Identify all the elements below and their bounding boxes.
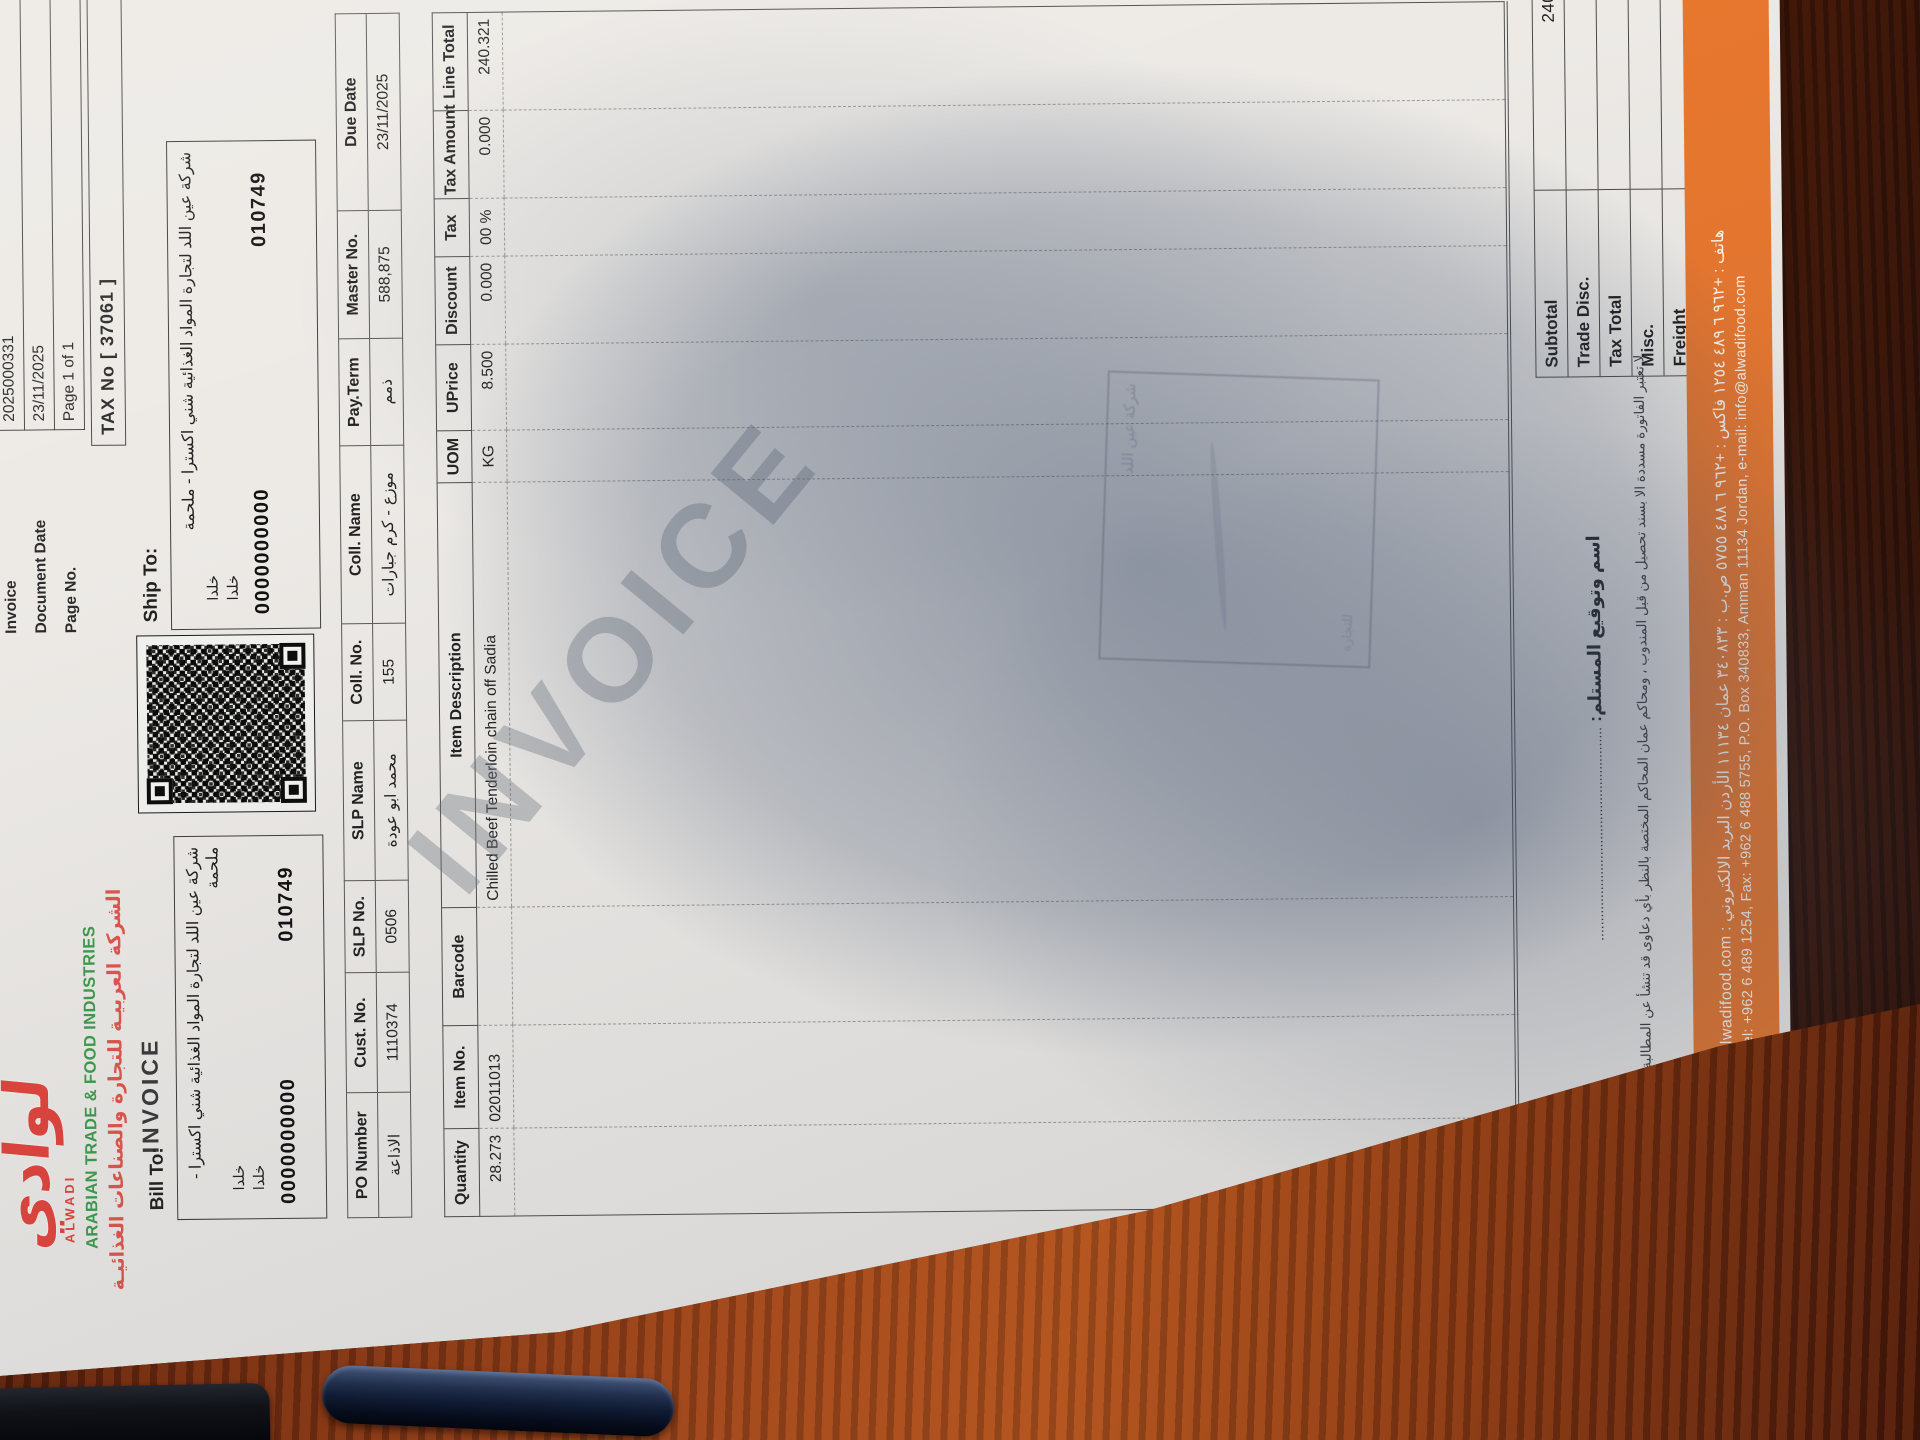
misc-value <box>1628 0 1663 190</box>
stamp-text: شركة عين اللد <box>1118 383 1139 474</box>
subtotal-label: Subtotal <box>1534 190 1568 377</box>
tax-total-label: Tax Total <box>1598 190 1632 377</box>
misc-label: Misc. <box>1630 189 1664 376</box>
company-name-english: ARABIAN TRADE & FOOD INDUSTRIES <box>80 889 103 1249</box>
uprice-header: UPrice <box>436 344 472 430</box>
item-quantity: 28.273 <box>479 1128 515 1216</box>
qr-code <box>136 634 316 814</box>
pay-term-value: ذمم <box>370 338 404 445</box>
tax-header: Tax <box>434 198 470 256</box>
item-tax: 00 % <box>469 198 505 256</box>
po-number-value: الاذاعة <box>377 1092 411 1217</box>
pay-term-header: Pay.Term <box>339 339 371 446</box>
brand-block: لوادي ALWADI ARABIAN TRADE & FOOD INDUST… <box>0 888 166 1250</box>
stamp-mark <box>1208 441 1230 631</box>
dark-object <box>0 1383 271 1440</box>
coll-name-value: موزع - كرم جبارات <box>371 445 406 623</box>
tax-amount-header: Tax Amount <box>433 110 469 198</box>
invoice-title: INVOICE <box>135 888 165 1153</box>
ship-to-customer-number: 010749 <box>247 171 271 247</box>
qr-finder-icon <box>281 777 307 803</box>
bill-to-name: شركة عين اللد لتجارة المواد الغذائية شني… <box>174 837 228 1220</box>
company-stamp: شركة عين اللد للتجارة <box>1098 370 1379 668</box>
coll-no-value: 155 <box>373 623 407 720</box>
bill-to-box: شركة عين اللد لتجارة المواد الغذائية شني… <box>173 835 327 1221</box>
quantity-header: Quantity <box>444 1128 480 1216</box>
tax-total-value <box>1596 0 1631 190</box>
legal-disclaimer: لا تعتبر الفاتورة مسددة الا بسند تحصيل م… <box>1631 355 1656 1175</box>
discount-header: Discount <box>435 256 471 344</box>
invoice-info-block: Invoice 2025000331 Document Date 23/11/2… <box>0 0 128 642</box>
item-barcode <box>477 907 513 1025</box>
receiver-signature-label: اسم وتوقيع المستلم: <box>1583 535 1605 722</box>
signature-dotted-line: ........................................… <box>1588 727 1606 941</box>
qr-finder-icon <box>147 778 173 804</box>
item-number: 02011013 <box>478 1025 514 1128</box>
bill-to-label: Bill To: <box>147 1147 170 1210</box>
master-no-value: 588,875 <box>368 210 402 338</box>
qr-finder-icon <box>279 643 305 669</box>
ship-to-account-number: 0000000000 <box>251 488 275 614</box>
alwadi-logo-arabic: لوادي <box>0 887 61 1253</box>
po-number-header: PO Number <box>346 1092 378 1217</box>
document-date-label: Document Date <box>25 430 57 642</box>
master-no-header: Master No. <box>337 211 369 339</box>
item-tax-amount: 0.000 <box>468 110 504 198</box>
trade-disc-row: Trade Disc. <box>1564 0 1600 377</box>
company-name-arabic: الشركة العربيـة للتجارة والصناعات الغذائ… <box>103 889 129 1249</box>
subtotal-row: Subtotal 240.321 <box>1532 0 1568 377</box>
info-row-page: Page No. Page 1 of 1 <box>50 0 87 641</box>
trade-disc-label: Trade Disc. <box>1566 190 1600 377</box>
invoice-number-label: Invoice <box>0 430 27 642</box>
bill-to-account-number: 0000000000 <box>277 1078 301 1204</box>
page-no-label: Page No. <box>55 429 87 641</box>
item-line-total: 240.321 <box>467 12 503 110</box>
tax-total-row: Tax Total <box>1596 0 1632 377</box>
coll-no-header: Coll. No. <box>342 623 374 720</box>
qr-pattern <box>146 644 306 804</box>
photo-scene: لوادي ALWADI ARABIAN TRADE & FOOD INDUST… <box>0 0 1920 1440</box>
document-date-value: 23/11/2025 <box>20 0 55 430</box>
item-no-header: Item No. <box>443 1025 479 1128</box>
due-date-value: 23/11/2025 <box>366 13 401 210</box>
bill-to-customer-number: 010749 <box>275 866 299 942</box>
item-unit-price: 8.500 <box>471 344 507 430</box>
misc-row: Misc. <box>1628 0 1664 376</box>
stamp-text: للتجارة <box>1339 614 1356 652</box>
item-uom: KG <box>472 430 508 482</box>
page-no-value: Page 1 of 1 <box>50 0 85 430</box>
ship-to-box: شركة عين اللد لتجارة المواد الغذائية شني… <box>166 140 321 631</box>
trade-disc-value <box>1564 0 1599 190</box>
line-total-header: Line Total <box>432 12 468 110</box>
ship-to-label: Ship To: <box>140 548 163 623</box>
receiver-signature-line: اسم وتوقيع المستلم: ....................… <box>1583 535 1610 1125</box>
item-discount: 0.000 <box>470 256 506 344</box>
tax-no-box: TAX No [ 37061 ] <box>86 0 126 446</box>
subtotal-value: 240.321 <box>1532 0 1567 191</box>
uom-header: UOM <box>437 430 473 482</box>
due-date-header: Due Date <box>335 14 368 211</box>
coll-name-header: Coll. Name <box>340 446 373 624</box>
